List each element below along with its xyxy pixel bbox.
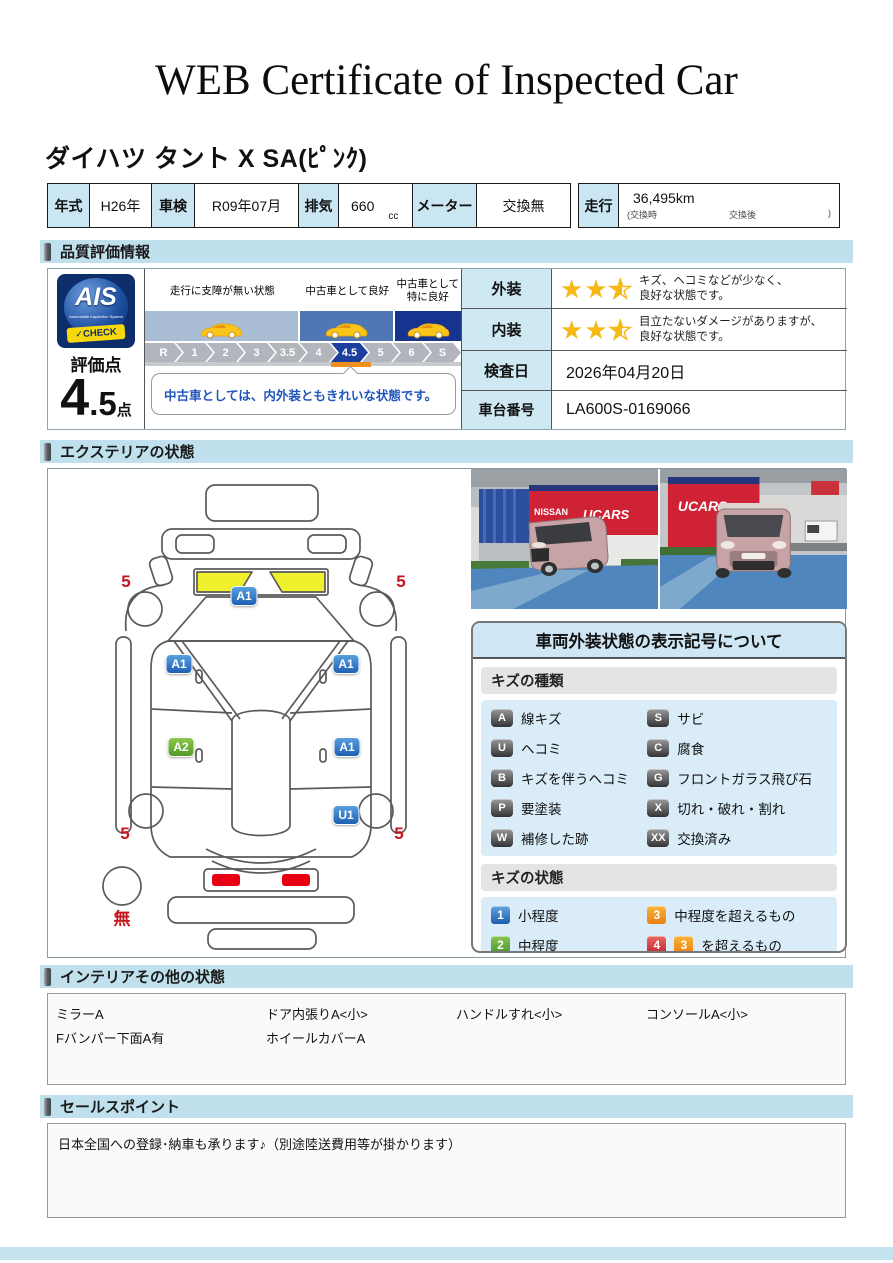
section-title-quality: 品質評価情報	[60, 241, 150, 262]
table-row-inspection-date: 検査日 2026年04月20日	[462, 351, 847, 391]
damage-kind-badge-B: B	[491, 769, 513, 787]
star-full: ★	[584, 317, 608, 343]
damage-marker-A1: A1	[334, 737, 361, 757]
page-title: WEB Certificate of Inspected Car	[0, 56, 893, 105]
damage-kind-label: 要塗装	[521, 798, 562, 818]
exterior-star-rating: ★★★★	[560, 276, 633, 302]
row-label: 外装	[462, 269, 552, 308]
wheel-note-5: 5	[394, 824, 403, 844]
section-tab-icon	[44, 1098, 51, 1116]
section-header-exterior: エクステリアの状態	[40, 440, 853, 463]
row-label: 内装	[462, 309, 552, 350]
damage-kind-label: 線キズ	[521, 708, 562, 728]
damage-kind-badge-G: G	[647, 769, 669, 787]
band-label-0: 走行に支障が無い状態	[145, 272, 300, 310]
band-0	[145, 311, 300, 341]
interior-rating-text: 目立たないダメージがありますが、良好な状態です。	[639, 315, 822, 345]
spec-header-4: 走行	[578, 183, 619, 228]
rating-scale-ticks: R1233.544.556S	[145, 343, 461, 362]
damage-marker-A1: A1	[231, 586, 258, 606]
interior-item: ハンドルすれ<小>	[456, 1004, 646, 1023]
vehicle-photos: NISSAN UCARS UCA	[471, 469, 847, 609]
damage-state-item-2: 2中程度	[491, 935, 643, 953]
damage-state-badge-2: 2	[491, 936, 510, 953]
damage-state-badge-4: 4	[647, 936, 666, 953]
damage-marker-U1: U1	[333, 805, 360, 825]
damage-kind-label: フロントガラス飛び石	[677, 768, 812, 788]
damage-kind-badge-A: A	[491, 709, 513, 727]
ais-score-cell: AIS Automobile Inspection System ✓CHECK …	[48, 269, 145, 429]
ais-check-banner: ✓CHECK	[67, 324, 126, 343]
spec-header-3: メーター	[412, 183, 477, 228]
damage-state-item-0: 1小程度	[491, 905, 643, 925]
rating-scale-graphic: 走行に支障が無い状態中古車として良好中古車として 特に良好 R1233.544.…	[145, 269, 461, 429]
wheel-note-5: 5	[120, 824, 129, 844]
section-header-sales: セールスポイント	[40, 1095, 853, 1118]
damage-state-label: 中程度を超えるもの	[674, 905, 795, 925]
score-value: 4.5点	[60, 376, 131, 420]
interior-item: コンソールA<小>	[646, 1004, 837, 1023]
damage-state-list: 1小程度3中程度を超えるもの2中程度43を超えるもの	[481, 897, 837, 953]
star-half: ★★	[609, 276, 633, 302]
interior-item: ドア内張りA<小>	[266, 1004, 456, 1023]
damage-kind-badge-X: X	[647, 799, 669, 817]
damage-kind-item-S: Sサビ	[647, 708, 827, 728]
damage-kind-badge-S: S	[647, 709, 669, 727]
damage-kind-item-P: P要塗装	[491, 798, 643, 818]
damage-kind-badge-W: W	[491, 829, 513, 847]
chassis-number-value: LA600S-0169066	[552, 391, 847, 429]
spec-value-2: 660cc	[338, 183, 413, 228]
spec-value-0: H26年	[89, 183, 152, 228]
exterior-condition-box: A1A1A1A2A1U15555無 NISSAN UCARS	[47, 468, 846, 958]
car-outline-drawing	[56, 473, 466, 953]
spec-header-1: 車検	[151, 183, 195, 228]
damage-marker-A1: A1	[333, 654, 360, 674]
car-name: ダイハツ タント X SA(ﾋﾟﾝｸ)	[45, 139, 367, 175]
damage-kind-badge-XX: XX	[647, 829, 669, 847]
table-row-chassis-number: 車台番号 LA600S-0169066	[462, 391, 847, 429]
damage-kind-item-XX: XX交換済み	[647, 828, 827, 848]
damage-symbol-legend: 車両外装状態の表示記号について キズの種類 A線キズSサビUヘコミC腐食Bキズを…	[471, 621, 847, 953]
evaluation-comment: 中古車としては、内外装ともきれいな状態です。	[151, 373, 456, 415]
star-half: ★★	[609, 317, 633, 343]
interior-item-grid: ミラーAドア内張りA<小>ハンドルすれ<小>コンソールA<小>Fバンパー下面A有…	[56, 1004, 837, 1047]
interior-item: ホイールカバーA	[266, 1028, 456, 1047]
spec-value-1: R09年07月	[194, 183, 299, 228]
damage-marker-A1: A1	[166, 654, 193, 674]
section-title-exterior: エクステリアの状態	[60, 441, 195, 462]
damage-kind-badge-C: C	[647, 739, 669, 757]
section-header-quality: 品質評価情報	[40, 240, 853, 263]
damage-kind-item-W: W補修した跡	[491, 828, 643, 848]
damage-state-badge-3: 3	[647, 906, 666, 924]
interior-star-rating: ★★★★	[560, 317, 633, 343]
damage-kind-label: 交換済み	[677, 828, 731, 848]
damage-state-label: を超えるもの	[701, 935, 782, 953]
spec-header-0: 年式	[47, 183, 90, 228]
band-2	[395, 311, 461, 341]
damage-state-badge-1: 1	[491, 906, 510, 924]
damage-kind-badge-P: P	[491, 799, 513, 817]
star-full: ★	[560, 317, 584, 343]
photo-front-view[interactable]: UCARS	[660, 469, 847, 609]
ais-logo-text: AIS	[57, 283, 135, 312]
damage-marker-A2: A2	[168, 737, 195, 757]
section-header-interior: インテリアその他の状態	[40, 965, 853, 988]
damage-state-item-1: 3中程度を超えるもの	[647, 905, 827, 925]
inspection-date-value: 2026年04月20日	[552, 351, 847, 390]
legend-title: 車両外装状態の表示記号について	[473, 623, 845, 659]
damage-kind-item-G: Gフロントガラス飛び石	[647, 768, 827, 788]
sales-point-box: 日本全国への登録･納車も承ります♪（別途陸送費用等が掛かります）	[47, 1123, 846, 1218]
damage-kind-label: サビ	[677, 708, 704, 728]
section-tab-icon	[44, 968, 51, 986]
damage-kind-list: A線キズSサビUヘコミC腐食Bキズを伴うヘコミGフロントガラス飛び石P要塗装X切…	[481, 700, 837, 856]
damage-kind-badge-U: U	[491, 739, 513, 757]
ais-logo: AIS Automobile Inspection System ✓CHECK	[57, 274, 135, 348]
damage-state-item-3: 43を超えるもの	[647, 935, 827, 953]
row-label: 車台番号	[462, 391, 552, 429]
star-full: ★	[584, 276, 608, 302]
table-row-interior: 内装 ★★★★ 目立たないダメージがありますが、良好な状態です。	[462, 309, 847, 351]
ais-logo-subtitle: Automobile Inspection System	[57, 314, 135, 319]
damage-kind-label: ヘコミ	[521, 738, 562, 758]
section-title-interior: インテリアその他の状態	[60, 966, 225, 987]
rating-bands	[145, 311, 461, 341]
interior-item	[646, 1028, 837, 1047]
legend-state-header: キズの状態	[481, 864, 837, 891]
spec-value-3: 交換無	[476, 183, 571, 228]
spec-table: 年式H26年車検R09年07月排気660ccメーター交換無走行36,495km(…	[47, 183, 840, 228]
exterior-rating-text: キズ、ヘコミなどが少なく、良好な状態です。	[639, 274, 789, 304]
rating-band-labels: 走行に支障が無い状態中古車として良好中古車として 特に良好	[145, 272, 461, 310]
quality-detail-table: 外装 ★★★★ キズ、ヘコミなどが少なく、良好な状態です。 内装 ★★★★ 目立…	[461, 269, 847, 429]
damage-state-label: 小程度	[518, 905, 559, 925]
section-tab-icon	[44, 243, 51, 261]
damage-state-badge-3: 3	[674, 936, 693, 953]
damage-kind-label: 腐食	[677, 738, 704, 758]
damage-kind-label: 補修した跡	[521, 828, 589, 848]
interior-item	[456, 1028, 646, 1047]
rating-scale-baseline	[145, 362, 461, 366]
interior-item: ミラーA	[56, 1004, 266, 1023]
damage-kind-label: キズを伴うヘコミ	[521, 768, 629, 788]
interior-item: Fバンパー下面A有	[56, 1028, 266, 1047]
band-1	[300, 311, 395, 341]
spec-value-4: 36,495km(交換時交換後)	[618, 183, 840, 228]
damage-kind-item-X: X切れ・破れ・割れ	[647, 798, 827, 818]
damage-kind-item-A: A線キズ	[491, 708, 643, 728]
quality-evaluation-box: AIS Automobile Inspection System ✓CHECK …	[47, 268, 846, 430]
wheel-note-5: 5	[396, 572, 405, 592]
damage-kind-label: 切れ・破れ・割れ	[677, 798, 785, 818]
band-label-1: 中古車として良好	[300, 272, 395, 310]
damage-kind-item-U: Uヘコミ	[491, 738, 643, 758]
footer-bar	[0, 1247, 893, 1260]
row-label: 検査日	[462, 351, 552, 390]
star-full: ★	[560, 276, 584, 302]
wheel-note-無: 無	[114, 905, 131, 930]
wheel-note-5: 5	[121, 572, 130, 592]
car-damage-diagram: A1A1A1A2A1U15555無	[56, 473, 466, 953]
damage-state-label: 中程度	[518, 935, 559, 953]
damage-kind-item-C: C腐食	[647, 738, 827, 758]
band-label-2: 中古車として 特に良好	[395, 272, 461, 310]
table-row-exterior: 外装 ★★★★ キズ、ヘコミなどが少なく、良好な状態です。	[462, 269, 847, 309]
section-title-sales: セールスポイント	[60, 1096, 180, 1117]
section-tab-icon	[44, 443, 51, 461]
spec-header-2: 排気	[298, 183, 339, 228]
photo-front-left-view[interactable]: NISSAN UCARS	[471, 469, 658, 609]
damage-kind-item-B: Bキズを伴うヘコミ	[491, 768, 643, 788]
nissan-sign-text: NISSAN	[534, 507, 568, 517]
interior-condition-box: ミラーAドア内張りA<小>ハンドルすれ<小>コンソールA<小>Fバンパー下面A有…	[47, 993, 846, 1085]
legend-kind-header: キズの種類	[481, 667, 837, 694]
sales-point-text: 日本全国への登録･納車も承ります♪（別途陸送費用等が掛かります）	[58, 1137, 461, 1152]
scale-tick-R: R	[145, 343, 182, 362]
